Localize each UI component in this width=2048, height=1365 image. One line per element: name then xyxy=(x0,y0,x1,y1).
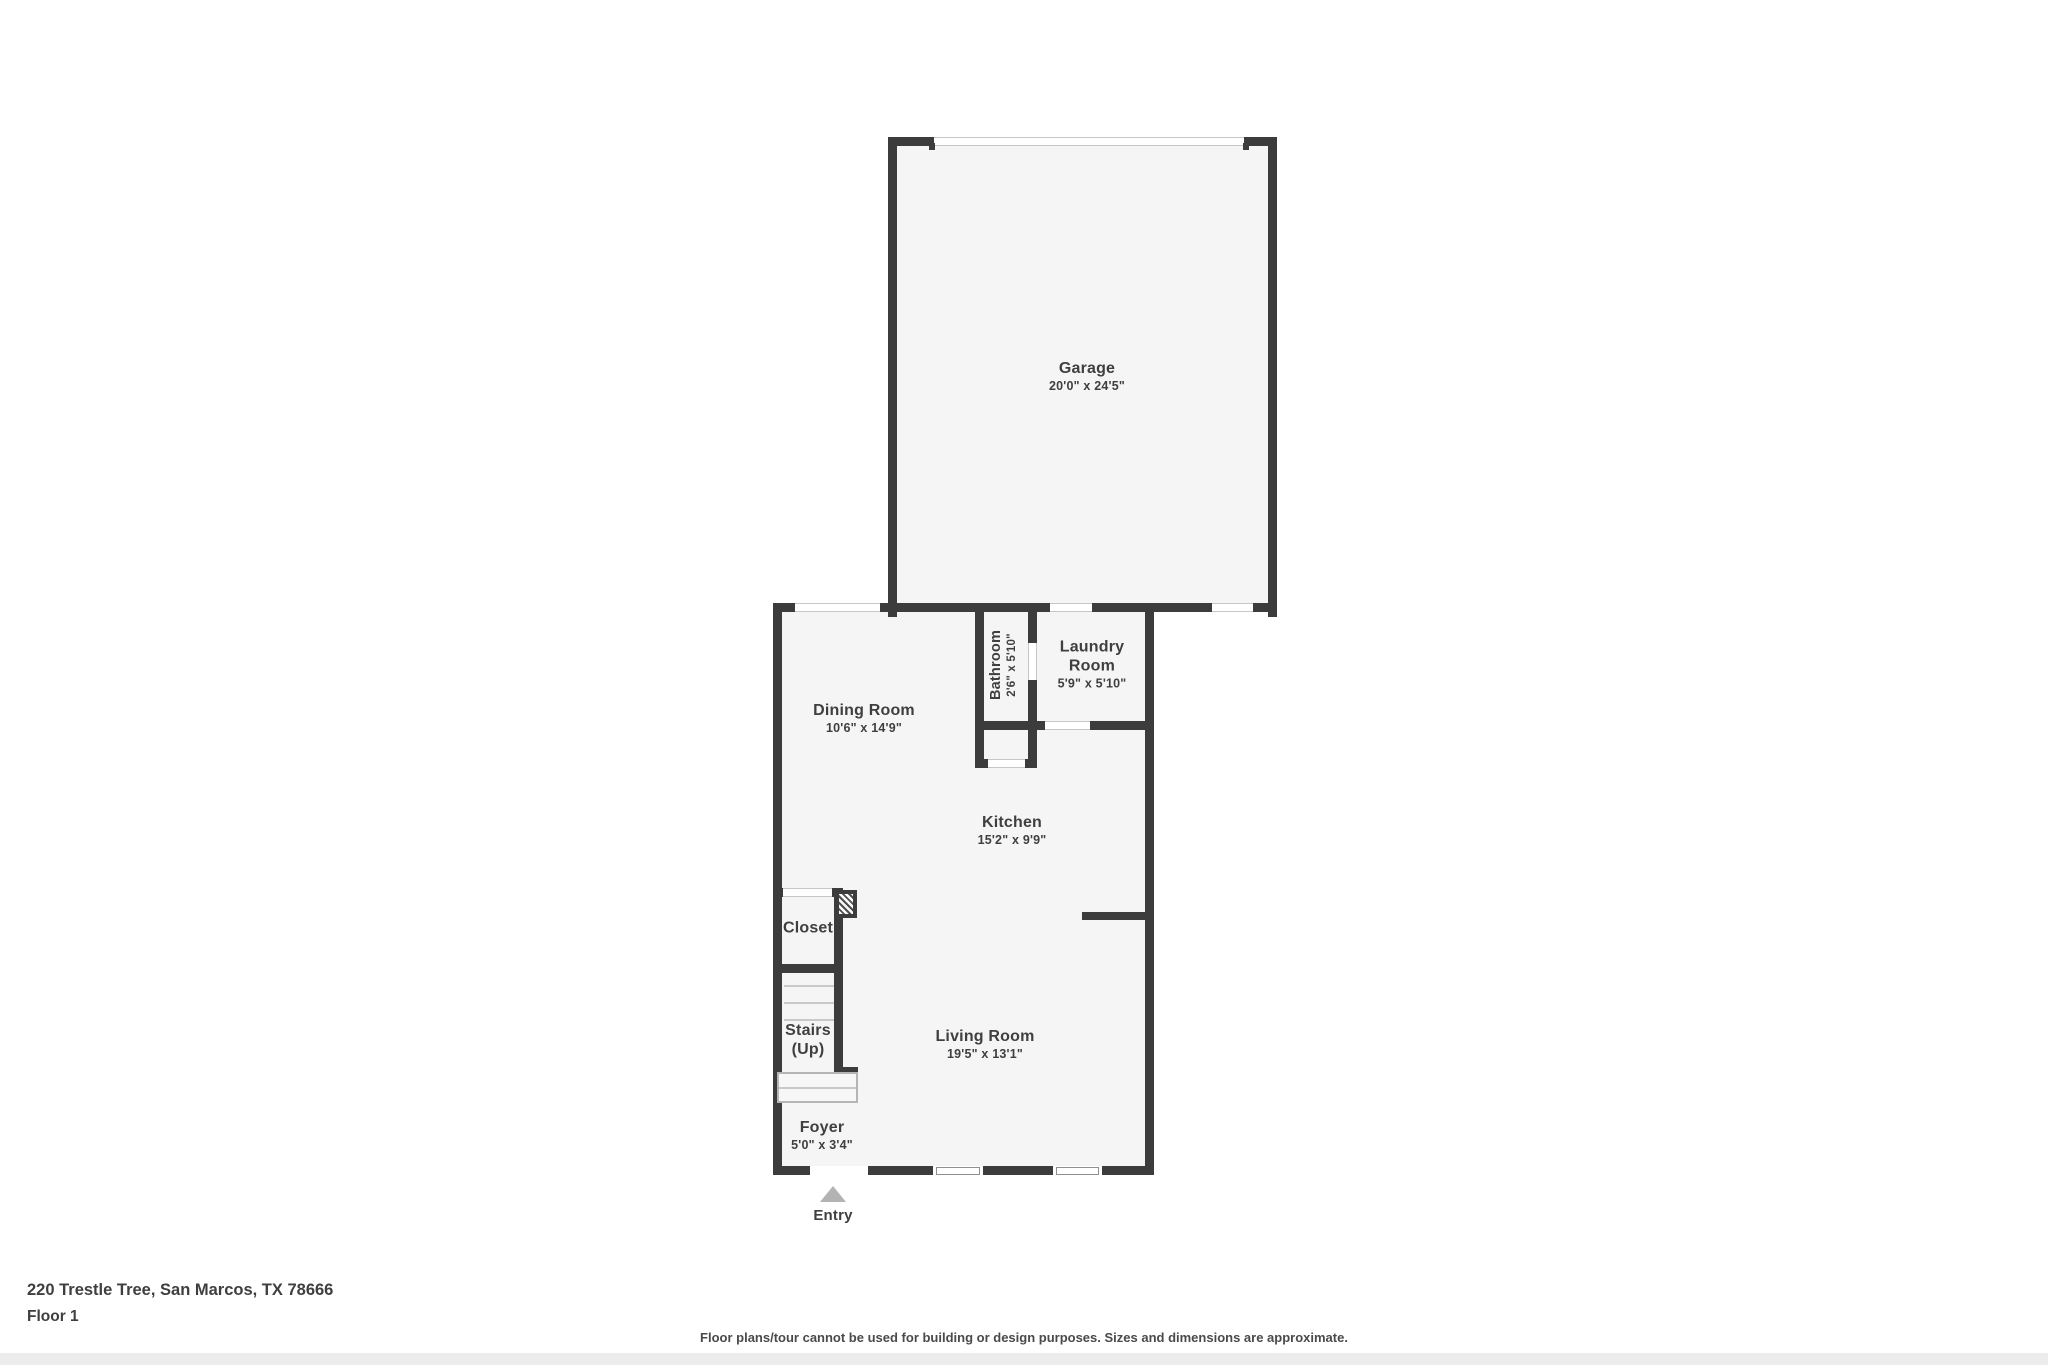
room-name: Bathroom xyxy=(988,630,1005,700)
wall-bottom-4 xyxy=(1102,1166,1154,1175)
room-label-laundry: Laundry Room 5'9" x 5'10" xyxy=(1049,638,1135,693)
entry-arrow-icon xyxy=(820,1186,846,1202)
footer-band xyxy=(0,1353,2048,1365)
room-dims: 15'2" x 9'9" xyxy=(978,832,1047,849)
room-name: Closet xyxy=(783,919,833,938)
water-heater xyxy=(835,890,857,918)
wall-bottom-3 xyxy=(983,1166,1053,1175)
wall-bathroom-left xyxy=(975,612,984,721)
room-name: Garage xyxy=(1049,359,1125,378)
property-address: 220 Trestle Tree, San Marcos, TX 78666 xyxy=(27,1281,333,1300)
room-dims: 10'6" x 14'9" xyxy=(813,720,915,737)
disclaimer-text: Floor plans/tour cannot be used for buil… xyxy=(0,1330,2048,1345)
room-name: Living Room xyxy=(935,1027,1034,1046)
room-dims: 20'0" x 24'5" xyxy=(1049,378,1125,395)
floor-label: Floor 1 xyxy=(27,1308,79,1326)
garage-door-opening xyxy=(934,137,1244,146)
wall-bathroom-right-lower xyxy=(1028,680,1037,721)
garage-laundry-door-opening xyxy=(1050,603,1092,612)
bathroom-door-opening xyxy=(1028,643,1037,680)
dining-window xyxy=(795,603,880,612)
room-label-kitchen: Kitchen 15'2" x 9'9" xyxy=(978,813,1047,849)
garage-rear-window xyxy=(1212,603,1253,612)
room-name: Kitchen xyxy=(978,813,1047,832)
wall-top-4 xyxy=(1253,603,1277,612)
living-window-1 xyxy=(933,1166,983,1175)
wall-mid-1 xyxy=(975,721,1045,730)
wall-nook-bottom-right xyxy=(1025,759,1037,768)
wall-closet-bottom xyxy=(773,964,843,973)
wall-kitchen-living-stub xyxy=(1082,912,1154,920)
room-sub: (Up) xyxy=(785,1040,831,1059)
entry-door-opening xyxy=(810,1166,868,1175)
room-name: Dining Room xyxy=(813,701,915,720)
stair-tread xyxy=(784,985,834,987)
water-heater-hatch xyxy=(839,894,853,914)
wall-bottom-2 xyxy=(868,1166,933,1175)
room-label-garage: Garage 20'0" x 24'5" xyxy=(1049,359,1125,395)
wall-garage-right xyxy=(1268,137,1277,617)
room-dims: 2'6" x 5'10" xyxy=(1005,630,1020,700)
wall-right-exterior xyxy=(1145,603,1154,1175)
stair-landing-tread xyxy=(779,1087,856,1089)
room-dims: 5'0" x 3'4" xyxy=(791,1137,853,1154)
room-dims: 19'5" x 13'1" xyxy=(935,1046,1034,1063)
floorplan-page: Garage 20'0" x 24'5" Laundry Room 5'9" x… xyxy=(0,0,2048,1365)
garage-door-jamb-right xyxy=(1243,143,1249,150)
wall-garage-left xyxy=(888,137,897,617)
closet-door-opening xyxy=(783,888,832,897)
window-glass xyxy=(936,1167,980,1175)
wall-bottom-1 xyxy=(773,1166,810,1175)
wall-top-2 xyxy=(880,603,1050,612)
room-name: Foyer xyxy=(791,1118,853,1137)
wall-bathroom-right-upper xyxy=(1028,612,1037,643)
room-name: Laundry Room xyxy=(1049,638,1135,676)
room-label-stairs: Stairs (Up) xyxy=(785,1021,831,1059)
room-label-foyer: Foyer 5'0" x 3'4" xyxy=(791,1118,853,1154)
living-window-2 xyxy=(1053,1166,1102,1175)
room-label-dining: Dining Room 10'6" x 14'9" xyxy=(813,701,915,737)
wall-nook-bottom-left xyxy=(975,759,988,768)
entry-label: Entry xyxy=(813,1207,852,1224)
garage-door-jamb-left xyxy=(929,143,935,150)
wall-garage-top-left xyxy=(888,137,934,146)
room-label-bathroom: Bathroom 2'6" x 5'10" xyxy=(988,630,1020,700)
window-glass xyxy=(1056,1167,1099,1175)
laundry-door-opening xyxy=(1045,721,1090,730)
room-label-living: Living Room 19'5" x 13'1" xyxy=(935,1027,1034,1063)
stair-landing xyxy=(777,1072,858,1103)
wall-closet-top-left xyxy=(773,888,783,897)
stair-tread xyxy=(784,1002,834,1004)
room-dims: 5'9" x 5'10" xyxy=(1049,676,1135,693)
wall-mid-2 xyxy=(1090,721,1154,730)
room-label-closet: Closet xyxy=(783,919,833,938)
room-name: Stairs xyxy=(785,1021,831,1040)
nook-door-opening xyxy=(988,759,1025,768)
